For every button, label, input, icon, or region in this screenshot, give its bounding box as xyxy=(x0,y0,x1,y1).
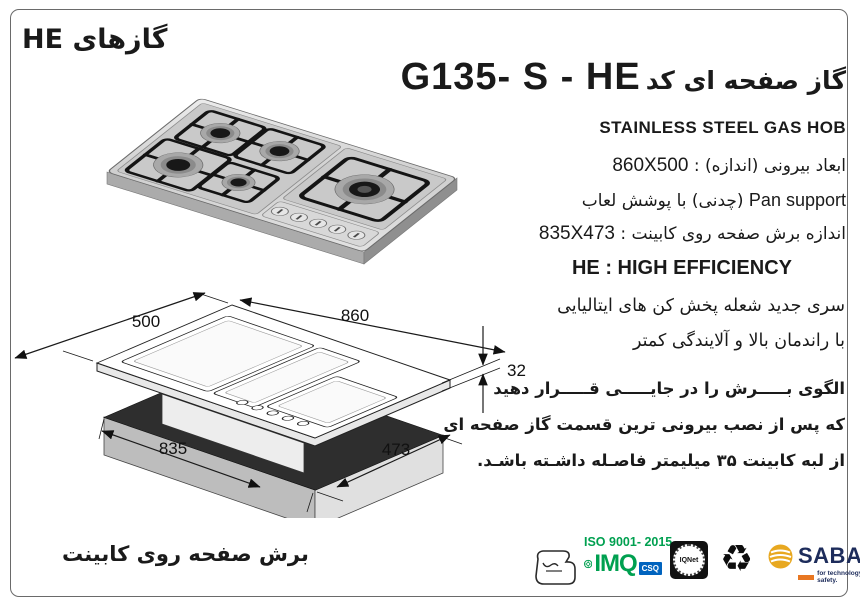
imq-logo: ISO 9001- 2015 IMQ CSQ xyxy=(584,535,662,578)
recycle-icon: ♻ xyxy=(720,535,753,583)
efficiency-line-2: با راندمان بالا و آلایندگی کمتر xyxy=(557,324,845,359)
imq-flower-icon xyxy=(584,555,592,573)
sabaf-emblem-icon xyxy=(768,544,793,569)
note-line-1: الگوی بـــــرش را در جایـــــی قـــــرار… xyxy=(513,371,845,407)
footer-caption: برش صفحه روی کابینت xyxy=(62,542,309,566)
efficiency-line-1: سری جدید شعله پخش کن های ایتالیایی xyxy=(557,289,845,324)
sabaf-logo: SABAF for technology and safety. xyxy=(768,543,860,584)
sabaf-orange-mark xyxy=(798,575,814,580)
dim-label-835: 835 xyxy=(159,439,187,458)
sabaf-label: SABAF xyxy=(798,543,860,569)
spec-sheet: گازهای HE گاز صفحه ای کد G135- S - HE ST… xyxy=(0,0,860,606)
spec-cut-size: اندازه برش صفحه روی کابینت : 835X473 xyxy=(539,217,846,251)
iran-standard-icon xyxy=(534,547,578,587)
dim-label-500: 500 xyxy=(132,312,160,331)
installation-note: الگوی بـــــرش را در جایـــــی قـــــرار… xyxy=(513,371,845,479)
note-line-3: از لبه کابینت ۳۵ میلیمتر فاصـله داشـته ب… xyxy=(513,443,845,479)
efficiency-description: سری جدید شعله پخش کن های ایتالیایی با را… xyxy=(557,289,845,359)
spec-outer-dimensions: ابعاد بیرونی (اندازه) : 860X500 xyxy=(539,149,846,183)
cutout-dimension-drawing: 500 860 32 835 473 xyxy=(10,288,530,518)
spec-list: ابعاد بیرونی (اندازه) : 860X500 Pan supp… xyxy=(539,149,846,251)
hob-product-drawing xyxy=(75,80,485,305)
high-efficiency-heading: HE : HIGH EFFICIENCY xyxy=(517,257,847,280)
spec-pan-support: Pan support (چدنی) با پوشش لعاب xyxy=(539,183,846,217)
note-line-2: که پس از نصب بیرونی ترین قسمت گاز صفحه ا… xyxy=(513,407,845,443)
iqnet-label: IQNet xyxy=(680,557,699,564)
imq-label: IMQ xyxy=(594,550,636,578)
iso-label: ISO 9001- 2015 xyxy=(584,535,662,549)
iqnet-badge: IQNet xyxy=(670,541,708,579)
model-title-fa: گاز صفحه ای کد xyxy=(646,66,846,95)
category-title: گازهای HE xyxy=(22,24,167,55)
sabaf-tagline: for technology and safety. xyxy=(817,570,860,584)
dim-label-32: 32 xyxy=(507,361,526,380)
csq-badge: CSQ xyxy=(639,562,662,575)
product-subtitle: STAINLESS STEEL GAS HOB xyxy=(599,118,846,138)
dim-label-473: 473 xyxy=(382,440,410,459)
dim-label-860: 860 xyxy=(341,306,369,325)
